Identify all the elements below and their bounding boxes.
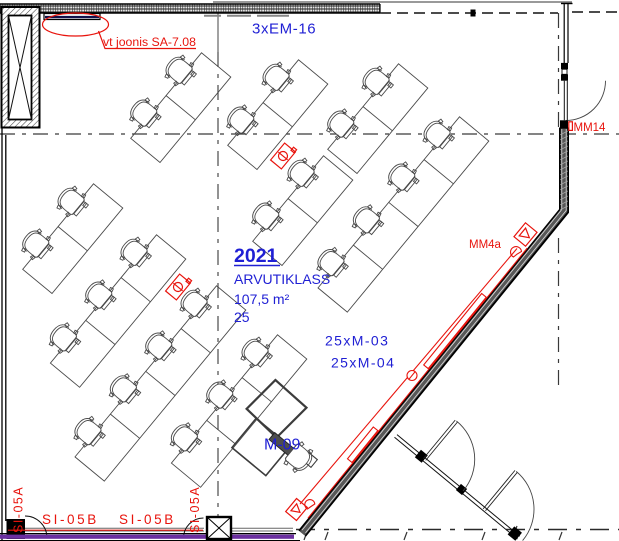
svg-text:107,5 m²: 107,5 m²	[234, 291, 290, 307]
svg-text:25xM-03: 25xM-03	[325, 333, 389, 349]
svg-text:SI-05A: SI-05A	[12, 486, 26, 533]
svg-text:3xEM-16: 3xEM-16	[252, 21, 316, 38]
svg-text:MM4a: MM4a	[469, 239, 502, 251]
svg-text:vt joonis SA-7.08: vt joonis SA-7.08	[103, 35, 196, 49]
svg-text:SI-05B: SI-05B	[119, 512, 176, 527]
svg-text:25: 25	[234, 309, 250, 325]
svg-text:SI-05A: SI-05A	[188, 486, 202, 533]
svg-text:2021: 2021	[234, 245, 278, 267]
svg-text:MM14: MM14	[574, 122, 607, 134]
svg-text:ARVUTIKLASS: ARVUTIKLASS	[234, 271, 330, 287]
svg-text:SI-05B: SI-05B	[42, 512, 99, 527]
svg-text:25xM-04: 25xM-04	[331, 355, 395, 371]
svg-text:M-09: M-09	[264, 437, 301, 454]
